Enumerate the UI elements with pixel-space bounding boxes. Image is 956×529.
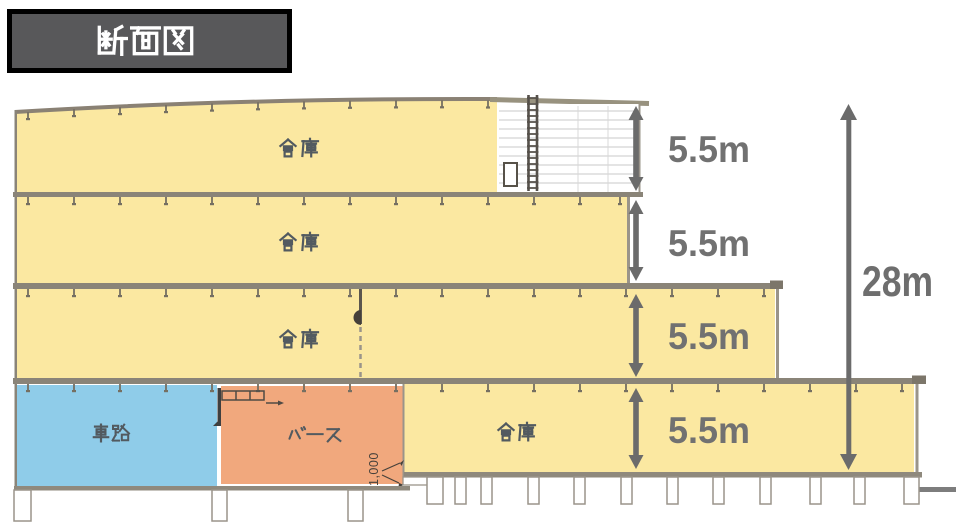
svg-text:5.5m: 5.5m <box>668 222 750 264</box>
svg-text:5.5m: 5.5m <box>668 409 750 451</box>
svg-text:28m: 28m <box>862 258 933 306</box>
svg-text:1,000: 1,000 <box>367 452 381 486</box>
svg-text:5.5m: 5.5m <box>668 315 750 357</box>
svg-text:5.5m: 5.5m <box>668 128 750 170</box>
